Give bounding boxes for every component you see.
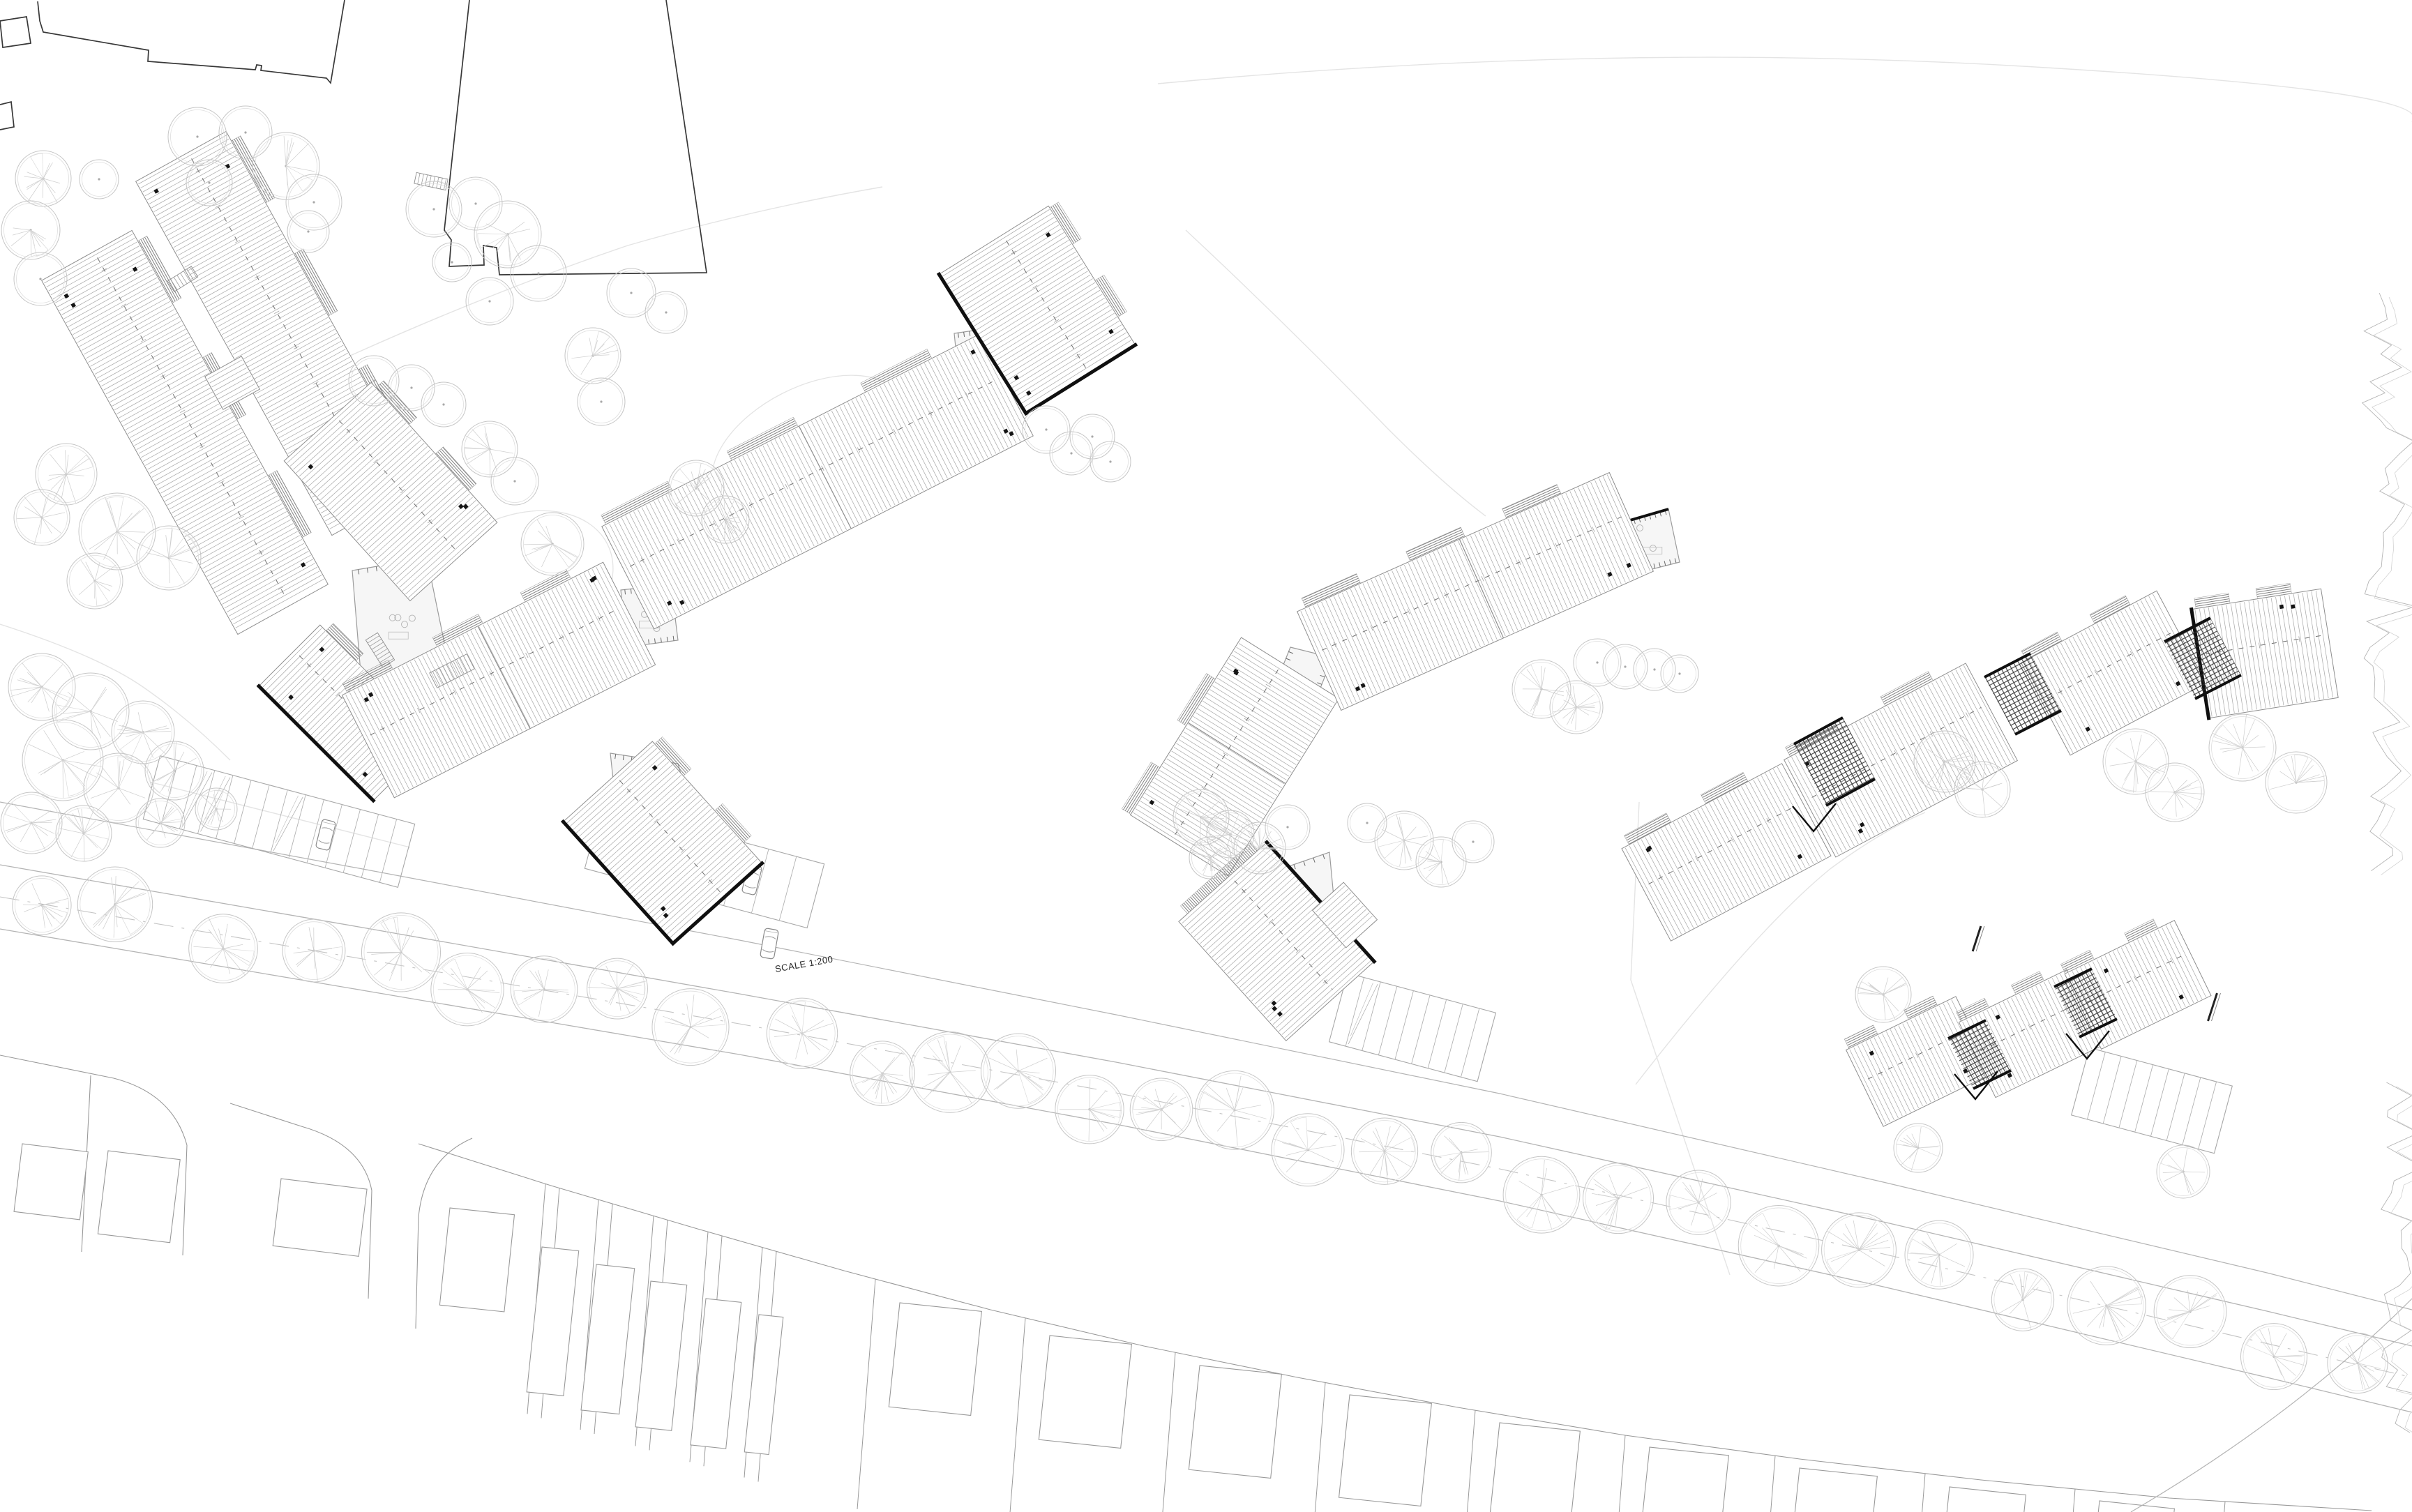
- site-plan-svg: SCALE 1:200: [0, 0, 2412, 1512]
- layer-context-buildings: [0, 0, 707, 275]
- layer-plots: [0, 1055, 2372, 1512]
- scale-label: SCALE 1:200: [774, 954, 834, 974]
- site-plan: SCALE 1:200: [0, 0, 2412, 1512]
- layer-vegetation-edge: [2362, 293, 2412, 1437]
